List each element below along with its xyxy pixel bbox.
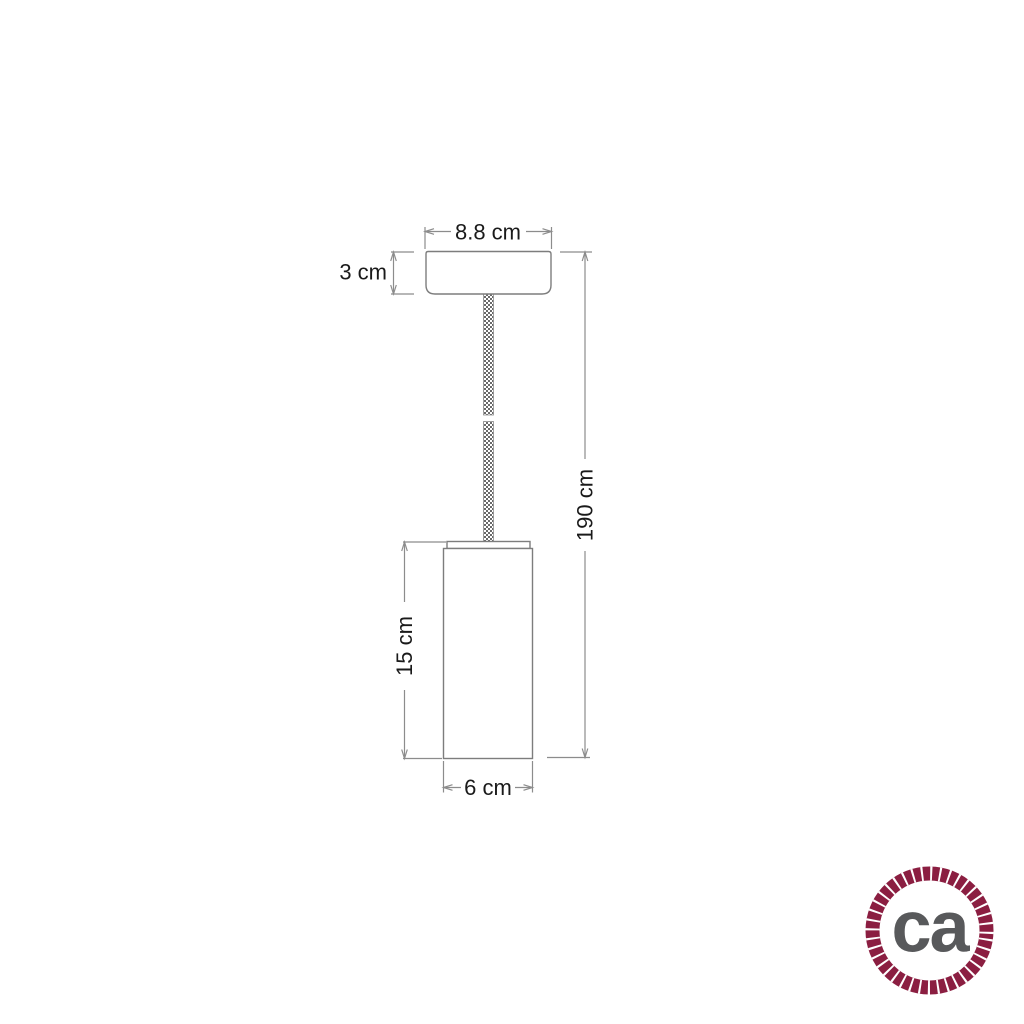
logo-text: ca [891, 888, 970, 968]
dim-rose-height: 3 cm [339, 252, 414, 294]
dimension-label-rose-width: 8.8 cm [455, 220, 521, 245]
lampshade-cap-shape [447, 542, 530, 549]
dimension-label-overall-drop: 190 cm [573, 469, 598, 541]
dim-overall-drop: 190 cm [547, 252, 599, 758]
dim-rose-width: 8.8 cm [425, 219, 552, 249]
dimension-label-shade-height: 15 cm [392, 616, 417, 676]
pendant-lamp-drawing [426, 252, 551, 759]
brand-logo: ca [865, 866, 994, 995]
ceiling-rose-shape [426, 252, 551, 295]
textile-cable-upper-segment [484, 294, 494, 415]
lampshade-body-shape [444, 549, 533, 759]
dim-shade-height: 15 cm [391, 542, 447, 759]
extension-lines [391, 252, 414, 294]
dimension-label-shade-diameter: 6 cm [464, 775, 512, 800]
textile-cable-lower-segment [484, 422, 494, 543]
product-dimension-diagram-page: 8.8 cm 3 cm 190 cm 15 cm [0, 0, 1024, 1024]
dim-shade-diameter: 6 cm [444, 761, 533, 800]
diagram-canvas: 8.8 cm 3 cm 190 cm 15 cm [0, 0, 1024, 1024]
dimension-label-rose-height: 3 cm [339, 260, 387, 285]
